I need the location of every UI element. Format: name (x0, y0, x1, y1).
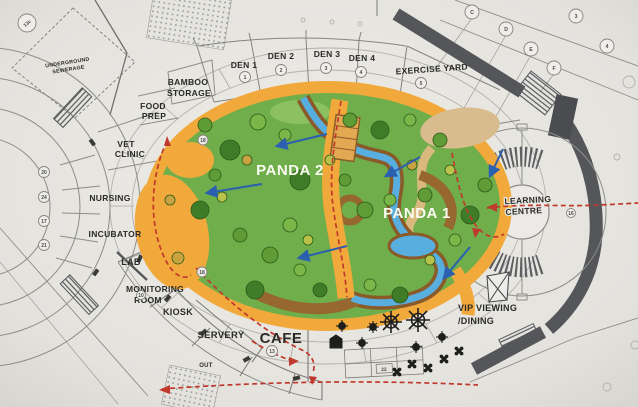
cafe-label: CAFE (260, 330, 303, 347)
grid-line-4: 4 (606, 44, 609, 50)
grid-letter-f: F (552, 66, 555, 72)
food-prep-label: FOOD (140, 101, 166, 111)
learning-side-num: 16 (568, 211, 574, 217)
out-label: OUT (199, 363, 213, 369)
nursing-label: NURSING (89, 193, 130, 203)
den4-label: DEN 4 (349, 53, 376, 63)
grid-letter-c: C (470, 10, 474, 16)
site-plan-sheet: UNDERGROUND SEWERAGE BAMBOO STORAGE FOOD… (0, 0, 638, 407)
left-room-17: 17 (41, 219, 47, 225)
den3-label: DEN 3 (314, 49, 341, 59)
kiosk-label: KIOSK (163, 307, 193, 317)
enclosure-gate-num: 18 (200, 138, 206, 144)
canopy-symbol (487, 272, 509, 302)
bamboo-storage-label2: STORAGE (167, 88, 211, 98)
lab-label: LAB (121, 257, 141, 267)
left-room-20: 20 (41, 170, 47, 176)
learning-centre-label2: CENTRE (505, 205, 542, 217)
vet-clinic-label: VET (117, 139, 135, 149)
vip-label2: /DINING (458, 316, 494, 326)
site-plan-drawing: UNDERGROUND SEWERAGE BAMBOO STORAGE FOOD… (0, 0, 638, 407)
cafe-num: 13 (269, 349, 275, 355)
exercise-yard-num: 5 (420, 81, 423, 87)
panda1-label: PANDA 1 (383, 205, 451, 222)
den3-num: 3 (325, 66, 328, 72)
panda2-label: PANDA 2 (256, 162, 324, 179)
vip-label: VIP VIEWING (458, 303, 517, 313)
room-grid-num: 22 (381, 367, 387, 373)
monitoring-room-label: MONITORING (126, 284, 184, 294)
den1-label: DEN 1 (231, 60, 258, 70)
den2-num: 2 (280, 68, 283, 74)
vet-clinic-label2: CLINIC (115, 149, 145, 159)
food-prep-label2: PREP (142, 111, 166, 121)
walkway-num: 18 (199, 270, 205, 276)
grid-letter-d: D (504, 27, 508, 33)
left-room-24: 24 (41, 195, 47, 201)
incubator-label: INCUBATOR (89, 229, 142, 239)
grid-line-3: 3 (575, 14, 578, 20)
servery-label: SERVERY (198, 330, 245, 341)
den1-num: 1 (244, 75, 247, 81)
left-room-21: 21 (41, 243, 47, 249)
den4-num: 4 (360, 70, 363, 76)
bamboo-storage-label: BAMBOO (168, 77, 209, 87)
pond (389, 234, 437, 258)
den2-label: DEN 2 (268, 51, 295, 61)
monitoring-num: 10 (138, 293, 144, 299)
